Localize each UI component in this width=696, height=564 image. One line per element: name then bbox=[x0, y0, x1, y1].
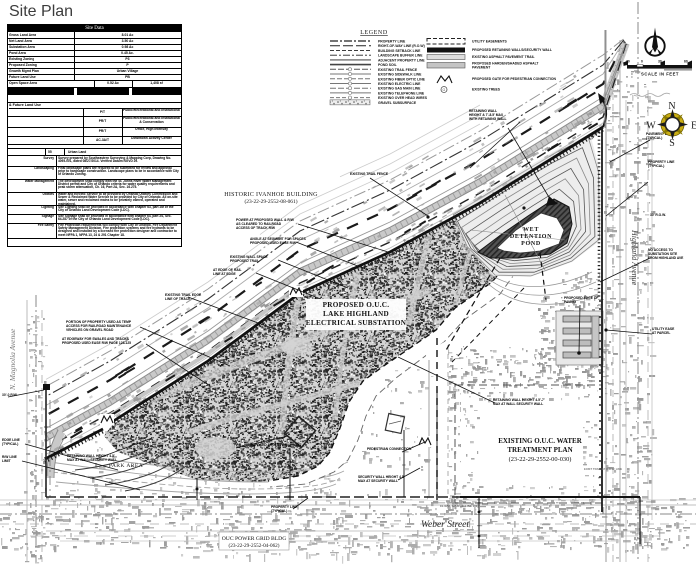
svg-text:PARK AREA: PARK AREA bbox=[109, 463, 143, 469]
svg-text:ACCESS OF TRACK R/W: ACCESS OF TRACK R/W bbox=[236, 226, 276, 230]
svg-text:EXISTING OVER HEAD WIRES: EXISTING OVER HEAD WIRES bbox=[378, 96, 428, 100]
svg-text:LINE OF TRACK: LINE OF TRACK bbox=[165, 297, 191, 301]
svg-text:GATE: GATE bbox=[258, 361, 268, 365]
svg-text:PROPOSED TRAIL: PROPOSED TRAIL bbox=[230, 259, 259, 263]
svg-text:S: S bbox=[669, 138, 675, 149]
svg-text:Weber Street: Weber Street bbox=[421, 520, 469, 530]
svg-text:PROPERTY LINE: PROPERTY LINE bbox=[378, 40, 406, 44]
svg-text:UTILITY EASEMENTS: UTILITY EASEMENTS bbox=[472, 40, 508, 44]
svg-text:Highland Avenue: Highland Avenue bbox=[630, 229, 639, 286]
svg-text:30’-0 R/W: 30’-0 R/W bbox=[2, 393, 18, 397]
svg-text:DETENTION: DETENTION bbox=[510, 234, 552, 240]
svg-text:LANDSCAPE BUFFER LINE: LANDSCAPE BUFFER LINE bbox=[378, 54, 423, 58]
svg-text:RIGHT-OF-WAY LINE (R.O.W): RIGHT-OF-WAY LINE (R.O.W) bbox=[378, 44, 425, 48]
svg-text:WITH RETAINING WALL: WITH RETAINING WALL bbox=[469, 117, 506, 121]
svg-text:(TYPICAL): (TYPICAL) bbox=[646, 136, 662, 140]
svg-text:PROPOSED ACCESS DRIVEWAY: PROPOSED ACCESS DRIVEWAY bbox=[248, 443, 300, 447]
svg-text:(23-22-29-2552-00-030): (23-22-29-2552-00-030) bbox=[509, 456, 572, 463]
svg-text:ELECTRICAL SUBSTATION: ELECTRICAL SUBSTATION bbox=[306, 319, 407, 327]
svg-text:30: 30 bbox=[626, 60, 630, 64]
svg-text:LIMIT: LIMIT bbox=[2, 459, 11, 463]
svg-text:G: G bbox=[443, 88, 446, 92]
svg-text:VEHICLES ON GRAVEL ROAD: VEHICLES ON GRAVEL ROAD bbox=[66, 328, 114, 332]
svg-text:PROPOSED USED EASE R/W: PROPOSED USED EASE R/W bbox=[250, 241, 297, 245]
svg-text:EXIST TRAIL AT R.O.W. LINE: EXIST TRAIL AT R.O.W. LINE bbox=[584, 467, 622, 471]
svg-text:GRAVEL SUBSURFACE: GRAVEL SUBSURFACE bbox=[378, 101, 417, 105]
svg-text:E: E bbox=[691, 121, 696, 132]
svg-text:N: N bbox=[668, 101, 675, 112]
svg-text:BUILDING SETBACK LINE: BUILDING SETBACK LINE bbox=[378, 49, 421, 53]
svg-text:EXISTING TRAIL FENCE: EXISTING TRAIL FENCE bbox=[350, 172, 389, 176]
svg-text:N. Magnolia Avenue: N. Magnolia Avenue bbox=[8, 328, 17, 391]
svg-text:MAX AT SECURITY WALL: MAX AT SECURITY WALL bbox=[358, 479, 398, 483]
svg-text:EXISTING TREES: EXISTING TREES bbox=[472, 88, 501, 92]
svg-text:POND: POND bbox=[521, 241, 541, 247]
svg-text:PROPOSED USED EASE R/W PAGE 1: PROPOSED USED EASE R/W PAGE 123-125 bbox=[62, 341, 131, 345]
svg-text:PROPOSED O.U.C.: PROPOSED O.U.C. bbox=[323, 301, 390, 309]
svg-text:EXISTING GAS MAIN LINE: EXISTING GAS MAIN LINE bbox=[378, 87, 421, 91]
svg-text:LINE AT EDGE: LINE AT EDGE bbox=[213, 272, 237, 276]
svg-text:EXISTING O.U.C. WATER: EXISTING O.U.C. WATER bbox=[498, 437, 583, 445]
svg-text:W: W bbox=[646, 121, 656, 132]
svg-text:(TYPICAL): (TYPICAL) bbox=[271, 509, 287, 513]
svg-text:EXISTING TELEPHONE LINE: EXISTING TELEPHONE LINE bbox=[378, 91, 425, 95]
svg-text:0: 0 bbox=[641, 60, 643, 64]
svg-text:(TYPICAL): (TYPICAL) bbox=[648, 164, 664, 168]
svg-text:60: 60 bbox=[684, 60, 688, 64]
svg-text:PAVEMENT: PAVEMENT bbox=[472, 66, 491, 70]
svg-text:EXISTING FIBER OPTIC LINE: EXISTING FIBER OPTIC LINE bbox=[378, 77, 426, 81]
svg-text:(23-22-29-2552-08-061): (23-22-29-2552-08-061) bbox=[245, 198, 298, 205]
svg-text:(TYPICAL): (TYPICAL) bbox=[2, 442, 18, 446]
svg-text:LEGEND: LEGEND bbox=[360, 30, 388, 36]
svg-text:EXISTING ELECTRIC LINE: EXISTING ELECTRIC LINE bbox=[378, 82, 421, 86]
svg-text:OUC POWER GRID BLDG: OUC POWER GRID BLDG bbox=[222, 536, 286, 542]
svg-text:EXISTING TRAIL FENCE: EXISTING TRAIL FENCE bbox=[378, 68, 418, 72]
svg-text:FROM HIGHLAND AVE: FROM HIGHLAND AVE bbox=[648, 256, 684, 260]
svg-text:PAVING: PAVING bbox=[564, 300, 577, 304]
svg-text:30: 30 bbox=[658, 60, 662, 64]
svg-text:EXISTING ASPHALT PAVEMENT TRAI: EXISTING ASPHALT PAVEMENT TRAIL bbox=[472, 55, 535, 59]
svg-text:WET: WET bbox=[523, 227, 539, 233]
svg-text:TREATMENT PLAN: TREATMENT PLAN bbox=[507, 446, 572, 454]
svg-text:MAX AT WALL SECURITY WALL: MAX AT WALL SECURITY WALL bbox=[493, 402, 543, 406]
svg-text:(23-22-29-2552-04-062): (23-22-29-2552-04-062) bbox=[229, 542, 280, 549]
svg-text:MAX AT WALL SECURITY WALL: MAX AT WALL SECURITY WALL bbox=[67, 458, 117, 462]
svg-text:CL RAIL SPUR AL. LINE 100: CL RAIL SPUR AL. LINE 100 bbox=[440, 504, 478, 508]
svg-text:PROPOSED GATE FOR PEDESTRIAN C: PROPOSED GATE FOR PEDESTRIAN CONNECTION bbox=[472, 77, 557, 81]
svg-text:PROPOSED RETAINING WALLS/SECUR: PROPOSED RETAINING WALLS/SECURITY WALL bbox=[472, 48, 552, 52]
svg-text:30’ R.O.W.: 30’ R.O.W. bbox=[650, 213, 666, 217]
svg-text:EXISTING SIDEWALK LINE: EXISTING SIDEWALK LINE bbox=[378, 73, 422, 77]
svg-text:AT PARCEL: AT PARCEL bbox=[652, 331, 670, 335]
svg-text:ADJACENT PROPERTY LINE: ADJACENT PROPERTY LINE bbox=[378, 58, 425, 62]
svg-text:HISTORIC IVANHOE BUILDING: HISTORIC IVANHOE BUILDING bbox=[224, 192, 318, 198]
svg-text:PEDESTRIAN CONNECTION: PEDESTRIAN CONNECTION bbox=[367, 447, 412, 451]
svg-text:LAKE HIGHLAND: LAKE HIGHLAND bbox=[323, 310, 389, 318]
svg-text:POND SOIL: POND SOIL bbox=[378, 63, 397, 67]
svg-text:SCALE IN FEET: SCALE IN FEET bbox=[641, 72, 679, 77]
